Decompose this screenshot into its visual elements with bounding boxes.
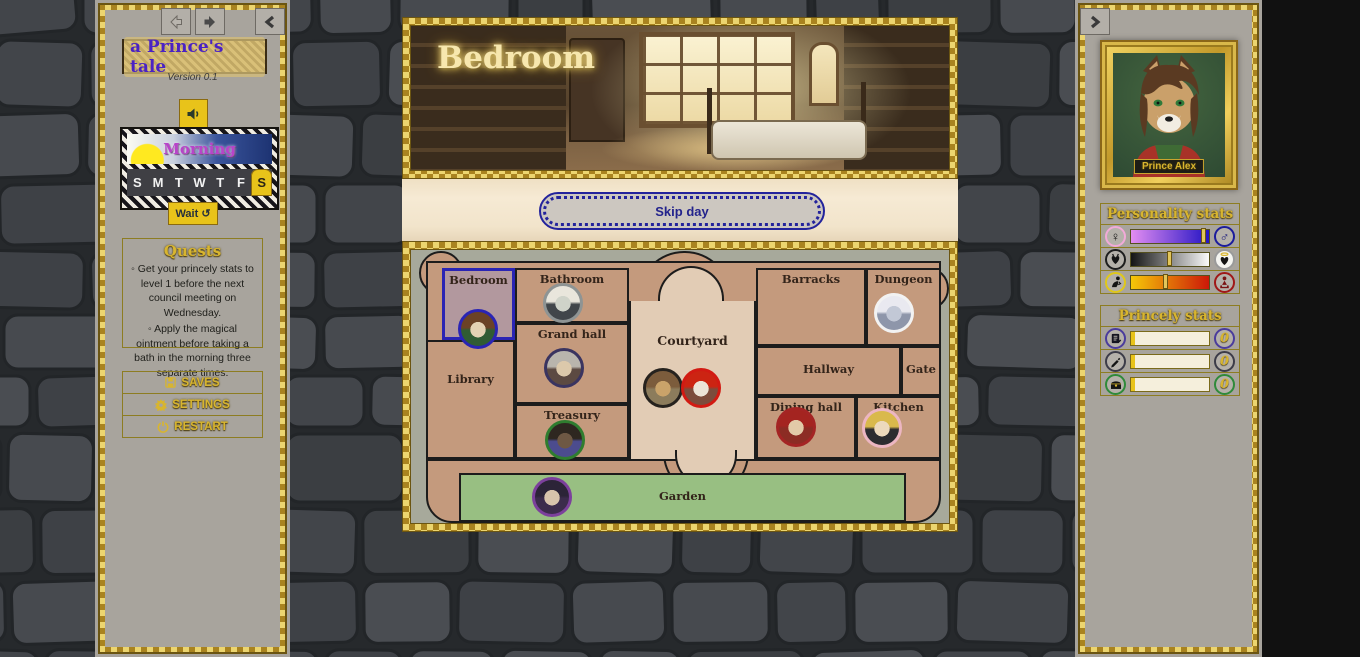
devil-heart-icon <box>1105 249 1126 270</box>
princely-row-skill: 0 <box>1101 350 1239 373</box>
time-panel: Morning S M T W T F S <box>120 127 279 210</box>
right-sidebar-collapse-button[interactable] <box>1080 8 1110 35</box>
skip-day-label: Skip day <box>543 196 821 226</box>
character-avatar-dining-hall[interactable] <box>776 407 816 447</box>
character-avatar-dungeon[interactable] <box>874 293 914 333</box>
castle-map: Bedroom Bathroom Grand hall Library Trea… <box>410 249 950 524</box>
character-avatar-garden[interactable] <box>532 477 572 517</box>
room-label: Gate <box>903 362 939 376</box>
quest-item: ◦ Get your princely stats to level 1 bef… <box>129 262 256 320</box>
weekday-letter: F <box>231 169 252 196</box>
weekday-strip: S M T W T F S <box>127 169 272 196</box>
character-avatar-courtyard-1[interactable] <box>643 368 683 408</box>
dominance-icon <box>1214 272 1235 293</box>
chest-icon <box>1105 374 1126 395</box>
action-strip: Skip day <box>402 179 958 242</box>
saves-label: SAVES <box>181 377 219 389</box>
settings-label: SETTINGS <box>172 399 230 411</box>
chevron-left-icon <box>264 15 276 29</box>
female-icon: ♀ <box>1105 226 1126 247</box>
left-sidebar: a Prince's tale Version 0.1 Morning S M … <box>95 0 290 657</box>
quests-title: Quests <box>123 242 262 260</box>
slider-handle <box>1167 251 1172 266</box>
skill-level-badge: 0 <box>1214 351 1235 372</box>
quests-panel: Quests ◦ Get your princely stats to leve… <box>122 238 263 348</box>
weekday-letter-active: S <box>251 169 272 196</box>
scene-header-panel: Bedroom <box>402 17 958 179</box>
devotion-slider <box>1130 275 1210 290</box>
restart-button[interactable]: RESTART <box>122 415 263 438</box>
room-label: Courtyard <box>631 333 754 348</box>
room-label: Bedroom <box>445 273 512 287</box>
progress-fill <box>1131 378 1135 391</box>
power-icon <box>157 421 169 433</box>
right-arrow-icon <box>203 15 217 29</box>
room-garden[interactable]: Garden <box>459 473 906 522</box>
room-library[interactable]: Library <box>426 340 515 459</box>
gender-slider <box>1130 229 1210 244</box>
princely-row-wealth: 0 <box>1101 373 1239 395</box>
morality-slider <box>1130 252 1210 267</box>
knowledge-level-badge: 0 <box>1214 328 1235 349</box>
room-label: Dungeon <box>868 272 939 286</box>
praying-icon <box>1105 272 1126 293</box>
game-canvas: a Prince's tale Version 0.1 Morning S M … <box>0 0 1262 657</box>
scene-title: Bedroom <box>437 40 595 76</box>
wait-button[interactable]: Wait ↺ <box>168 202 218 225</box>
weekday-letter: S <box>127 169 148 196</box>
room-label: Grand hall <box>517 327 627 341</box>
weekday-letter: T <box>168 169 189 196</box>
save-icon <box>165 377 176 388</box>
gear-icon <box>155 399 167 411</box>
character-avatar-kitchen[interactable] <box>862 408 902 448</box>
room-label: Library <box>428 372 513 386</box>
scene-image: Bedroom <box>410 25 950 171</box>
scroll-icon <box>1105 328 1126 349</box>
room-label: Hallway <box>758 362 899 376</box>
right-sidebar: Prince Alex Personality stats ♀ ♂ <box>1075 0 1262 657</box>
saves-button[interactable]: SAVES <box>122 371 263 394</box>
progress-fill <box>1131 355 1135 368</box>
character-avatar-bedroom[interactable] <box>458 309 498 349</box>
princely-stats-panel: Princely stats 0 0 0 <box>1100 305 1240 396</box>
weekday-letter: W <box>189 169 210 196</box>
time-of-day-banner: Morning <box>127 134 272 164</box>
weekday-letter: T <box>210 169 231 196</box>
castle-map-panel: Bedroom Bathroom Grand hall Library Trea… <box>402 241 958 532</box>
character-avatar-courtyard-2[interactable] <box>681 368 721 408</box>
slider-handle <box>1163 274 1168 289</box>
room-barracks[interactable]: Barracks <box>756 268 866 346</box>
speaker-icon <box>186 107 201 121</box>
history-back-button[interactable] <box>161 8 191 35</box>
bed <box>711 120 867 160</box>
room-label: Barracks <box>758 272 864 286</box>
personality-row-gender: ♀ ♂ <box>1101 225 1239 248</box>
restart-label: RESTART <box>174 421 227 433</box>
knowledge-progress-bar <box>1130 331 1210 346</box>
princely-stats-title: Princely stats <box>1101 306 1239 327</box>
sound-toggle-button[interactable] <box>179 99 208 128</box>
left-sidebar-collapse-button[interactable] <box>255 8 285 35</box>
personality-stats-panel: Personality stats ♀ ♂ <box>1100 203 1240 294</box>
chevron-right-icon <box>1089 15 1101 29</box>
weekday-letter: M <box>148 169 169 196</box>
game-title-banner: a Prince's tale <box>122 39 267 74</box>
progress-fill <box>1131 332 1135 345</box>
character-avatar-treasury[interactable] <box>545 420 585 460</box>
princely-row-knowledge: 0 <box>1101 327 1239 350</box>
time-of-day-label: Morning <box>163 140 236 158</box>
room-label: Bathroom <box>517 272 627 286</box>
version-label: Version 0.1 <box>95 72 290 83</box>
room-label: Treasury <box>517 408 627 422</box>
angel-heart-icon <box>1214 249 1235 270</box>
personality-stats-title: Personality stats <box>1101 204 1239 225</box>
room-label: Garden <box>461 489 904 503</box>
prince-name-label: Prince Alex <box>1134 159 1204 174</box>
scene-arched-window <box>809 42 839 106</box>
personality-row-morality <box>1101 248 1239 271</box>
skip-day-button[interactable]: Skip day <box>539 192 825 230</box>
male-icon: ♂ <box>1214 226 1235 247</box>
game-title: a Prince's tale <box>124 37 265 77</box>
personality-row-devotion <box>1101 271 1239 293</box>
left-arrow-icon <box>169 15 183 29</box>
wealth-progress-bar <box>1130 377 1210 392</box>
room-hallway[interactable]: Hallway <box>756 346 901 396</box>
pen-icon <box>1105 351 1126 372</box>
scene-window <box>639 32 795 128</box>
room-gate[interactable]: Gate <box>901 346 941 396</box>
skill-progress-bar <box>1130 354 1210 369</box>
prince-portrait: Prince Alex <box>1113 53 1225 177</box>
history-forward-button[interactable] <box>195 8 225 35</box>
prince-portrait-frame: Prince Alex <box>1100 40 1238 190</box>
wealth-level-badge: 0 <box>1214 374 1235 395</box>
slider-handle <box>1201 228 1206 243</box>
settings-button[interactable]: SETTINGS <box>122 393 263 416</box>
character-avatar-bathroom[interactable] <box>543 283 583 323</box>
character-avatar-grand-hall[interactable] <box>544 348 584 388</box>
